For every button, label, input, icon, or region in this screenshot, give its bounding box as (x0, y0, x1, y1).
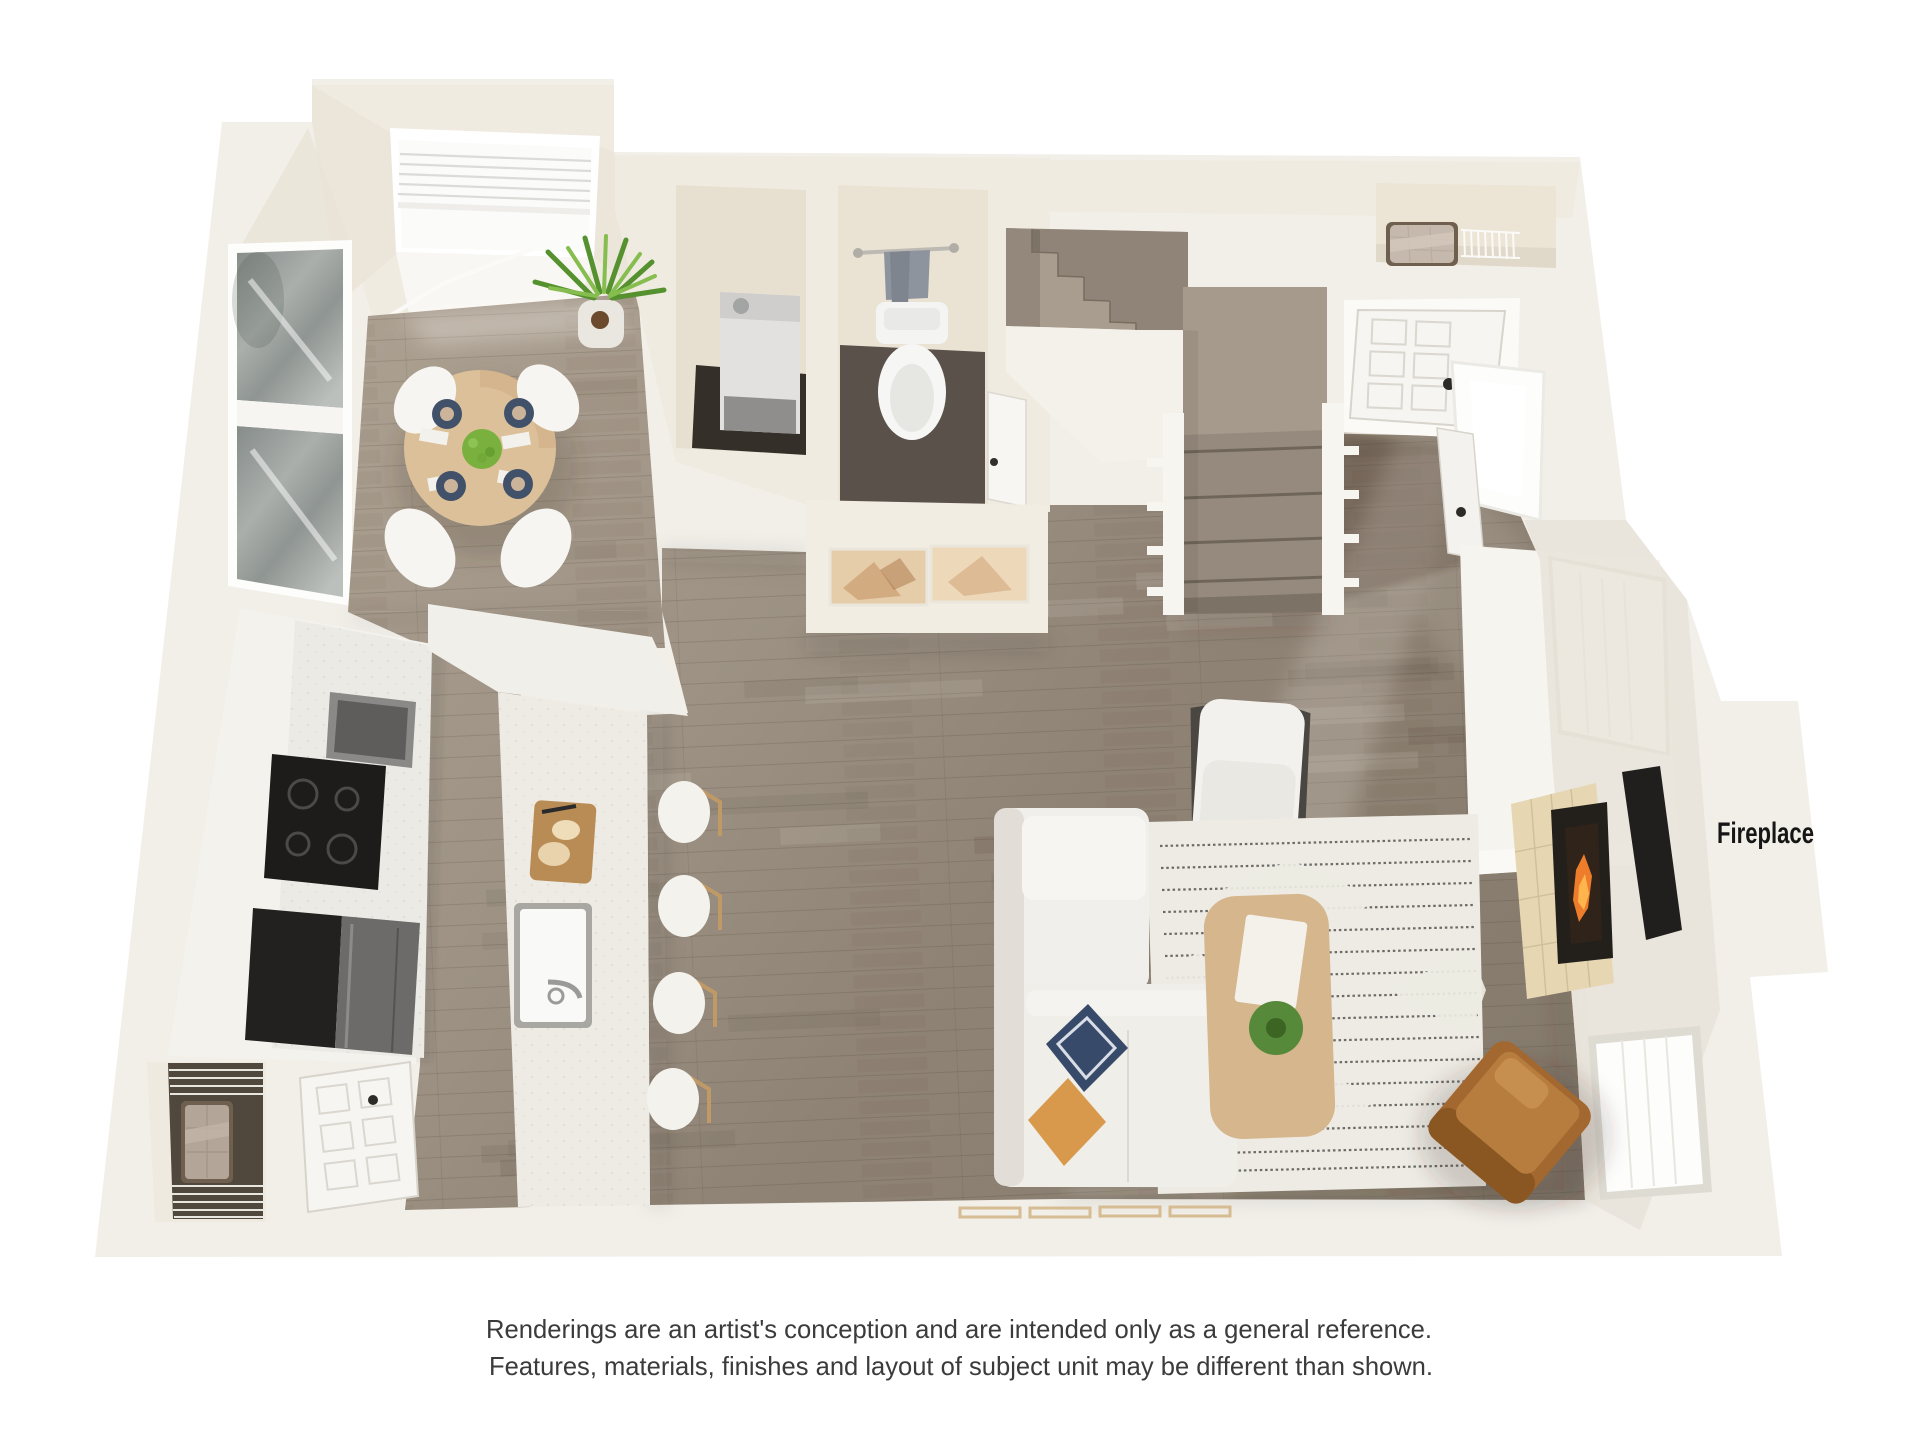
svg-text:Fireplace: Fireplace (1717, 817, 1814, 850)
svg-text:Features, materials, finishes: Features, materials, finishes and layout… (489, 1351, 1433, 1381)
svg-text:Renderings are an artist's con: Renderings are an artist's conception an… (486, 1314, 1432, 1344)
